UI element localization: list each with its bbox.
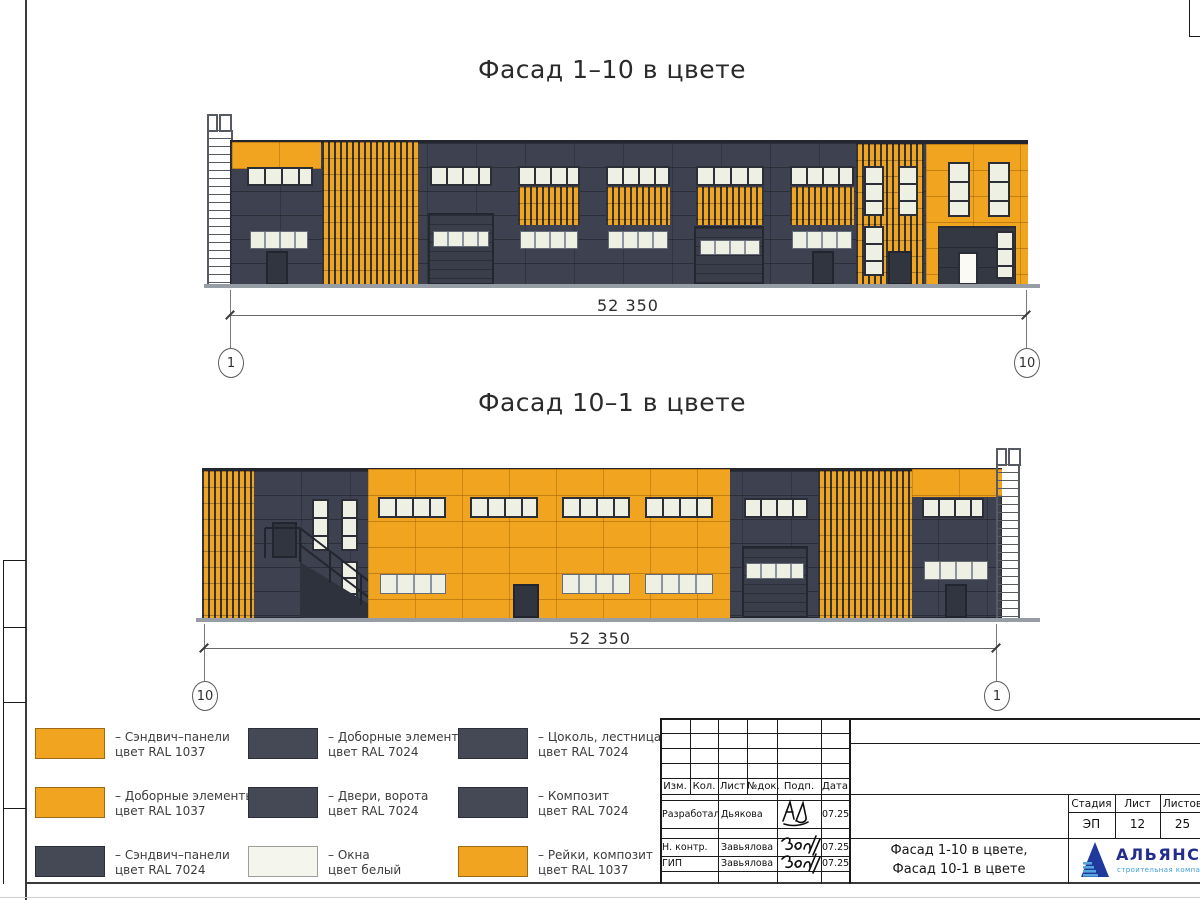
dimension-line [204, 648, 996, 649]
slat-panel [518, 187, 580, 225]
company-logo-text: АЛЬЯНС [1116, 845, 1200, 864]
legend-swatch [35, 787, 105, 818]
margin-box-line [3, 808, 26, 809]
tb-stage-label: Стадия [1068, 798, 1115, 810]
legend-swatch [248, 728, 318, 759]
margin-box-line [3, 560, 4, 884]
tb-sheet-value: 12 [1115, 817, 1160, 831]
window-band [790, 166, 854, 186]
tb-date: 07.25 [822, 809, 849, 820]
facade-1-title: Фасад 1–10 в цвете [112, 55, 1112, 84]
extension-line [204, 624, 205, 681]
frame-corner-line-h [1189, 36, 1200, 37]
garage-door [742, 546, 808, 618]
titleblock-line [660, 794, 1200, 795]
titleblock-line [849, 743, 1200, 744]
slat-panel [790, 187, 854, 225]
titleblock-line [660, 748, 849, 749]
tb-name: Завьялова [721, 842, 773, 853]
tb-header-izm: Изм. [660, 781, 690, 792]
window-band [792, 231, 852, 249]
titleblock-line [660, 838, 1200, 839]
window-band [250, 231, 308, 249]
company-logo-icon [1080, 841, 1110, 878]
window-band [746, 563, 804, 579]
titleblock-line [660, 718, 1200, 720]
legend-swatch [458, 787, 528, 818]
legend-label-line: цвет RAL 1037 [538, 863, 629, 877]
legend-label: – Сэндвич–панелицвет RAL 1037 [115, 730, 230, 759]
legend-label-line: – Рейки, композит [538, 848, 653, 862]
legend-label-line: – Доборные элементы [328, 730, 468, 744]
legend-label-line: – Цоколь, лестница [538, 730, 661, 744]
white-door [958, 252, 978, 285]
titleblock-line [718, 718, 719, 884]
tb-header-data: Дата [821, 781, 849, 792]
window-band [606, 166, 670, 186]
tb-role: Н. контр. [662, 842, 708, 853]
legend-label-line: – Сэндвич–панели [115, 730, 230, 744]
frame-left-border [25, 0, 27, 900]
extension-line [1026, 290, 1027, 348]
tb-header-podp: Подп. [777, 781, 821, 792]
tb-role: ГИП [662, 858, 682, 869]
facade-2-title: Фасад 10–1 в цвете [112, 388, 1112, 417]
window-band [433, 231, 489, 247]
margin-box-line [3, 702, 26, 703]
slat-panel [696, 187, 764, 225]
tb-date: 07.25 [822, 858, 849, 869]
dimension-label: 52 350 [400, 629, 800, 648]
sheet-edge-line [0, 897, 1200, 898]
legend-swatch [248, 787, 318, 818]
window-band [518, 166, 580, 186]
legend-swatch [35, 846, 105, 877]
window-band [696, 166, 764, 186]
tb-stage-value: ЭП [1068, 817, 1115, 831]
legend-label: – Композитцвет RAL 7024 [538, 789, 629, 818]
tb-role: Разработал [662, 809, 720, 820]
titleblock-line [660, 828, 849, 829]
legend-swatch [35, 728, 105, 759]
legend-swatch [458, 728, 528, 759]
orange-section [368, 469, 730, 618]
window-band [645, 574, 713, 594]
legend-label: – Доборные элементыцвет RAL 1037 [115, 789, 255, 818]
titleblock-line [660, 733, 849, 734]
legend-label: – Рейки, композитцвет RAL 1037 [538, 848, 653, 877]
entrance-door [888, 251, 912, 285]
axis-marker: 1 [984, 681, 1010, 711]
garage-door [428, 213, 494, 285]
tall-window [898, 166, 918, 216]
legend-label-line: – Композит [538, 789, 609, 803]
extension-line [230, 290, 231, 348]
legend-label: – Окнацвет белый [328, 848, 401, 877]
entrance-door [513, 584, 539, 618]
window-band [608, 231, 668, 249]
frame-corner-line-v [1189, 0, 1190, 36]
legend-swatch [248, 846, 318, 877]
legend-label-line: – Двери, ворота [328, 789, 428, 803]
window-band [470, 497, 538, 518]
entrance-door [945, 584, 967, 618]
titleblock-line [660, 763, 849, 764]
drawing-sheet: Фасад 1–10 в цвете 52 350 1 10 Фасад 10–… [0, 0, 1200, 900]
signature [779, 851, 821, 875]
titleblock-line [660, 778, 849, 779]
legend-label-line: цвет RAL 1037 [115, 804, 206, 818]
dimension-line [230, 315, 1026, 316]
legend-label-line: цвет RAL 7024 [328, 804, 419, 818]
tb-doc-name-line2: Фасад 10-1 в цвете [851, 862, 1067, 877]
garage-door [694, 226, 764, 285]
orange-panel-block [912, 469, 1002, 497]
slat-section [202, 468, 254, 621]
legend-label: – Двери, воротацвет RAL 7024 [328, 789, 428, 818]
legend-label-line: цвет белый [328, 863, 401, 877]
entrance-door [266, 251, 288, 285]
titleblock-line [1068, 812, 1200, 813]
legend-label: – Цоколь, лестницацвет RAL 7024 [538, 730, 661, 759]
extension-line [996, 624, 997, 681]
tall-window [864, 226, 884, 276]
window-band [924, 561, 988, 580]
company-logo-tagline: строительная компания [1117, 866, 1200, 874]
tall-window [996, 231, 1014, 279]
window-band [700, 240, 760, 255]
legend-label: – Сэндвич–панелицвет RAL 7024 [115, 848, 230, 877]
slat-section [322, 142, 418, 285]
signature [779, 797, 821, 827]
titleblock-line [777, 718, 778, 884]
orange-panel-block [232, 142, 321, 169]
ground-line [204, 284, 1040, 288]
axis-marker: 1 [218, 348, 244, 378]
ground-line [196, 618, 1040, 622]
tb-date: 07.25 [822, 842, 849, 853]
tb-sheets-value: 25 [1160, 817, 1200, 831]
dimension-label: 52 350 [428, 296, 828, 315]
legend-label-line: цвет RAL 7024 [115, 863, 206, 877]
axis-marker: 10 [192, 681, 218, 711]
window-band [562, 497, 630, 518]
legend-label: – Доборные элементыцвет RAL 7024 [328, 730, 468, 759]
slat-panel [606, 187, 670, 225]
legend-label-line: цвет RAL 1037 [115, 745, 206, 759]
tall-window [948, 162, 970, 217]
window-band [378, 497, 446, 518]
legend-label-line: – Окна [328, 848, 370, 862]
tb-sheets-label: Листов [1160, 798, 1200, 810]
window-band [922, 498, 984, 518]
window-band [520, 231, 578, 249]
slat-section [818, 468, 912, 621]
tb-doc-name-line1: Фасад 1-10 в цвете, [851, 843, 1067, 858]
legend-label-line: цвет RAL 7024 [538, 745, 629, 759]
window-band [247, 167, 313, 186]
window-band [430, 166, 492, 186]
margin-box-line [3, 560, 26, 561]
frame-bottom-border [26, 882, 1200, 884]
tb-header-list: Лист [718, 781, 747, 792]
window-band [380, 574, 446, 594]
entrance-door [812, 251, 834, 285]
margin-box-line [3, 627, 26, 628]
fire-ladder [996, 464, 1020, 618]
tb-sheet-label: Лист [1115, 798, 1160, 810]
legend-label-line: цвет RAL 7024 [328, 745, 419, 759]
tb-name: Дьякова [721, 809, 763, 820]
axis-marker: 10 [1014, 348, 1040, 378]
tb-header-kol: Кол. [690, 781, 718, 792]
tb-header-doc: №док. [747, 781, 777, 792]
legend-swatch [458, 846, 528, 877]
window-band [645, 497, 713, 518]
tb-name: Завьялова [721, 858, 773, 869]
tall-window [864, 166, 884, 216]
window-band [562, 574, 630, 594]
tall-window [988, 162, 1010, 217]
legend-label-line: – Доборные элементы [115, 789, 255, 803]
window-band [744, 498, 808, 518]
legend-label-line: цвет RAL 7024 [538, 804, 629, 818]
legend-label-line: – Сэндвич–панели [115, 848, 230, 862]
